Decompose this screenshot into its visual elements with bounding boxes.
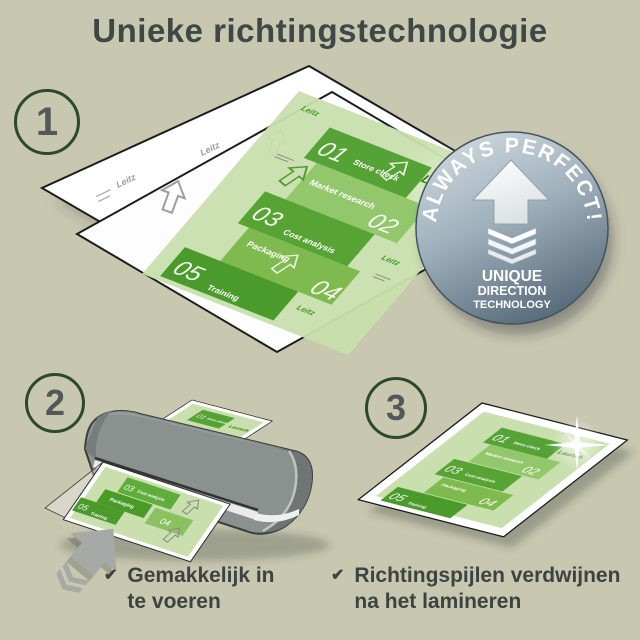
step-number-2: 2	[45, 382, 65, 424]
step-circle-1: 1	[14, 89, 80, 155]
badge-line-direction: DIRECTION	[478, 284, 547, 298]
step-circle-2: 2	[25, 373, 85, 433]
page-title: Unieke richtingstechnologie	[0, 12, 640, 50]
checkmark-icon: ✔	[104, 563, 117, 589]
caption-line: te voeren	[127, 589, 274, 615]
caption-line: Richtingspijlen verdwijnen	[354, 563, 620, 589]
badge-line-technology: TECHNOLOGY	[473, 299, 551, 311]
illustration-canvas: Leitz Leitz Leitz Launch 01 Store check …	[0, 0, 640, 640]
badge-line-unique: UNIQUE	[482, 268, 542, 285]
checkmark-icon: ✔	[331, 563, 344, 589]
caption-line: Gemakkelijk in	[127, 563, 274, 589]
always-perfect-badge: ALWAYS PERFECT! UNIQUE DIRECTION TECHNOL…	[416, 132, 613, 335]
step-number-1: 1	[36, 100, 58, 145]
caption-easy-feed: ✔ Gemakkelijk in te voeren	[104, 563, 275, 615]
caption-line: na het lamineren	[354, 589, 620, 615]
caption-arrows-disappear: ✔ Richtingspijlen verdwijnen na het lami…	[331, 563, 620, 615]
caption-arrows-disappear-text: Richtingspijlen verdwijnen na het lamine…	[354, 563, 620, 615]
caption-easy-feed-text: Gemakkelijk in te voeren	[127, 563, 274, 615]
step-circle-3: 3	[365, 377, 427, 439]
step-number-3: 3	[386, 387, 406, 429]
